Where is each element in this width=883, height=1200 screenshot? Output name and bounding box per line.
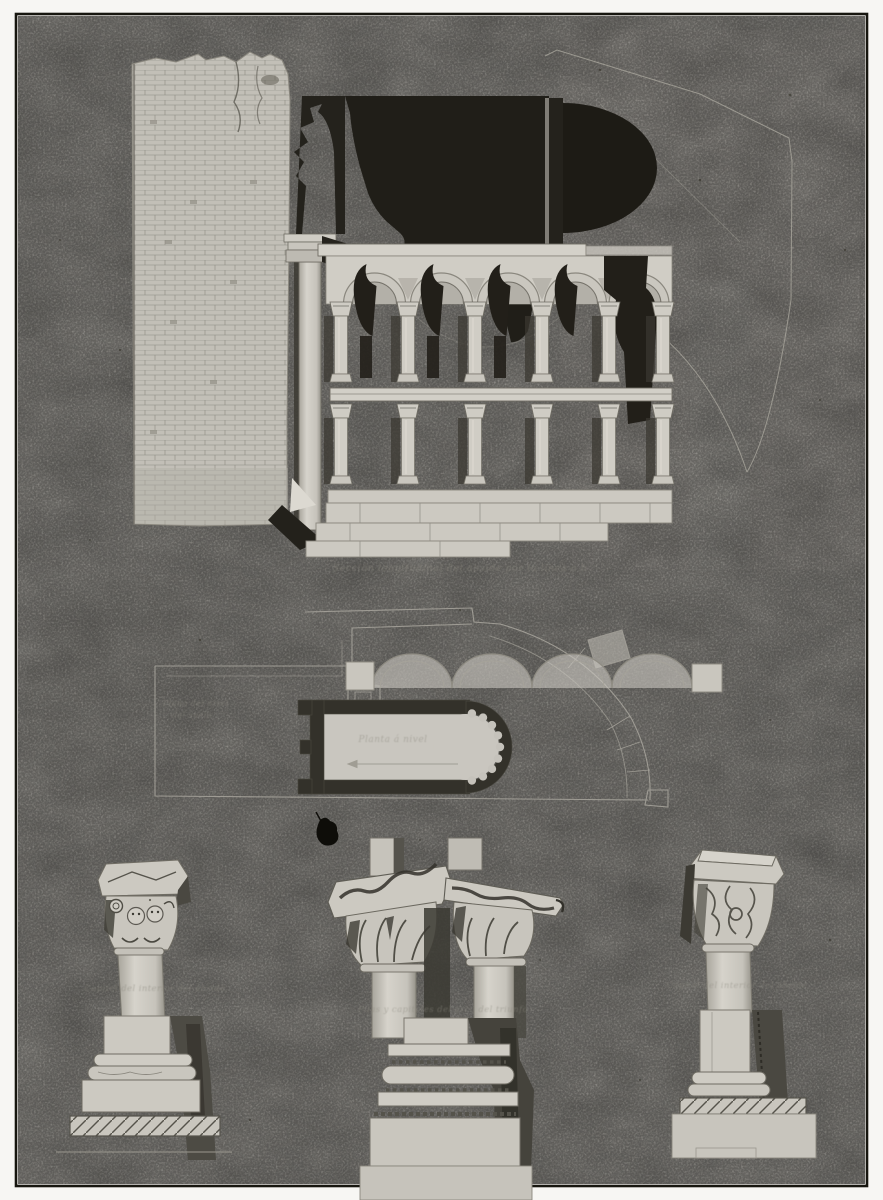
capitals-center-caption: Pilas y capiteles del arco del triunfo xyxy=(357,1005,528,1015)
plan-left-label-line2: del suelo xyxy=(172,711,212,720)
plan-center-label: Planta á nivel xyxy=(357,734,427,745)
plate-artwork: Sección longitudinal del ábside por la l… xyxy=(0,0,883,1200)
scanned-plate-page: Sección longitudinal del ábside por la l… xyxy=(0,0,883,1200)
capital-left-caption: Capitel del interior del ábside xyxy=(84,983,225,994)
string-course xyxy=(330,388,672,401)
plan-chapel-walls xyxy=(298,700,512,794)
capital-right-caption: Capitel del interior del ábside xyxy=(666,980,807,991)
cornice-molding xyxy=(318,244,672,256)
elevation-caption: Sección longitudinal del ábside por la l… xyxy=(333,563,588,574)
brick-wall xyxy=(132,52,290,526)
plan-left-label-line1: Plano del nivel xyxy=(162,699,229,708)
